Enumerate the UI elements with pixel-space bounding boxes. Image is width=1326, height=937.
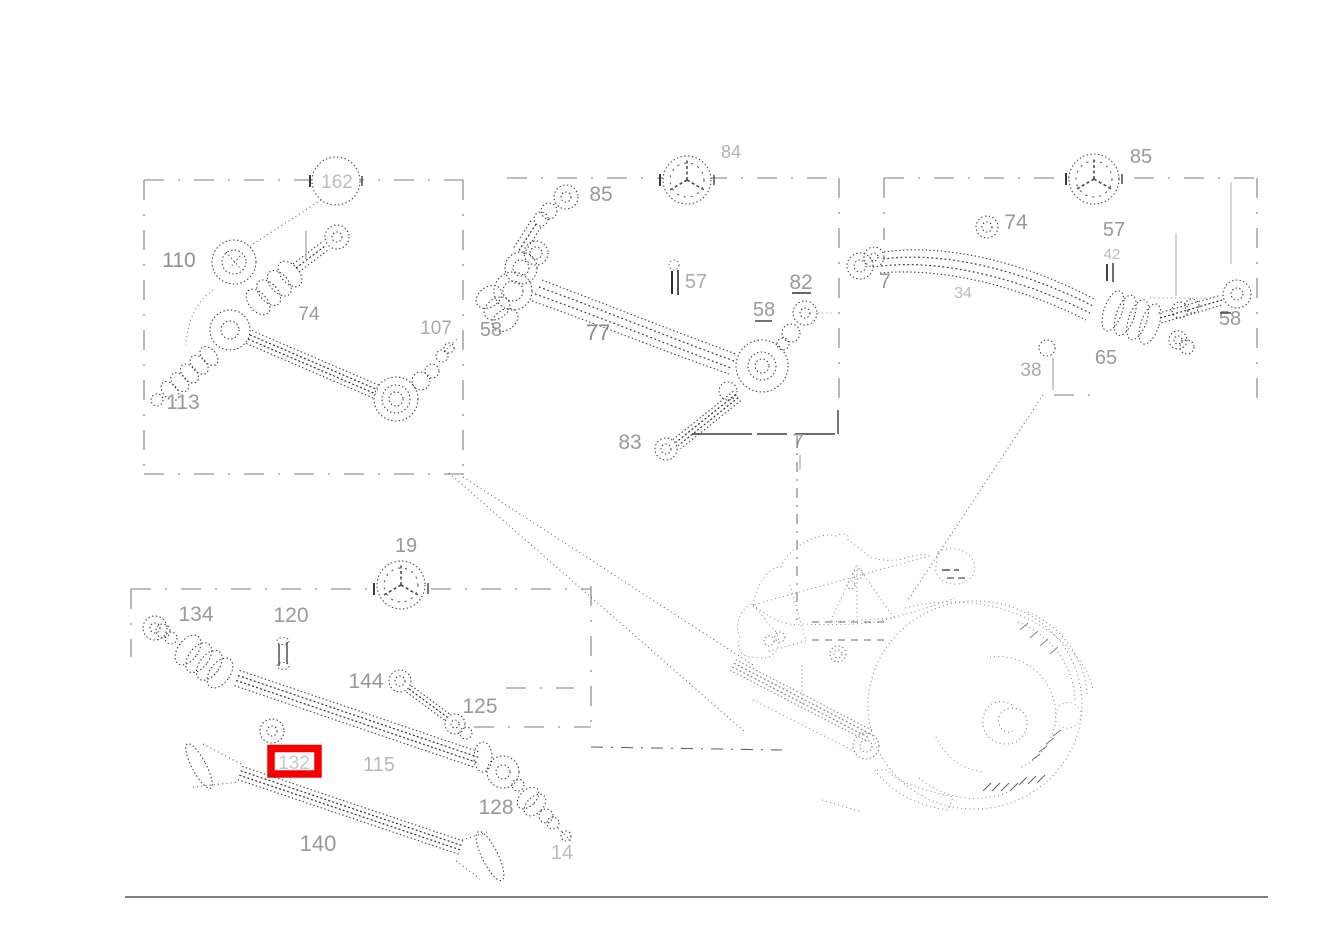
svg-text:42: 42 xyxy=(1104,246,1121,263)
svg-text:144: 144 xyxy=(348,670,383,693)
svg-text:140: 140 xyxy=(300,831,337,856)
svg-text:85: 85 xyxy=(1130,146,1152,168)
svg-text:84: 84 xyxy=(721,142,741,162)
svg-text:19: 19 xyxy=(395,535,417,557)
svg-text:128: 128 xyxy=(478,796,513,819)
svg-text:7: 7 xyxy=(792,431,803,453)
svg-text:74: 74 xyxy=(1004,211,1028,234)
svg-text:57: 57 xyxy=(1103,219,1125,241)
svg-text:125: 125 xyxy=(462,695,497,718)
svg-text:113: 113 xyxy=(166,391,199,414)
svg-text:162: 162 xyxy=(321,172,353,193)
svg-text:120: 120 xyxy=(273,604,308,627)
svg-text:74: 74 xyxy=(298,304,320,325)
svg-text:82: 82 xyxy=(789,271,812,294)
svg-text:132: 132 xyxy=(278,753,310,774)
svg-text:110: 110 xyxy=(162,249,195,272)
svg-text:77: 77 xyxy=(586,320,610,345)
svg-text:115: 115 xyxy=(363,754,395,776)
svg-text:14: 14 xyxy=(551,842,573,864)
svg-text:7: 7 xyxy=(879,270,891,293)
svg-text:134: 134 xyxy=(178,603,213,626)
svg-text:65: 65 xyxy=(1095,347,1117,369)
svg-text:58: 58 xyxy=(1219,308,1241,330)
svg-text:57: 57 xyxy=(685,271,707,293)
svg-text:38: 38 xyxy=(1020,360,1041,381)
svg-text:34: 34 xyxy=(954,285,972,302)
svg-text:85: 85 xyxy=(589,183,612,206)
svg-text:58: 58 xyxy=(480,319,502,341)
svg-text:58: 58 xyxy=(753,299,775,321)
svg-text:83: 83 xyxy=(618,431,641,454)
svg-text:107: 107 xyxy=(420,318,452,339)
